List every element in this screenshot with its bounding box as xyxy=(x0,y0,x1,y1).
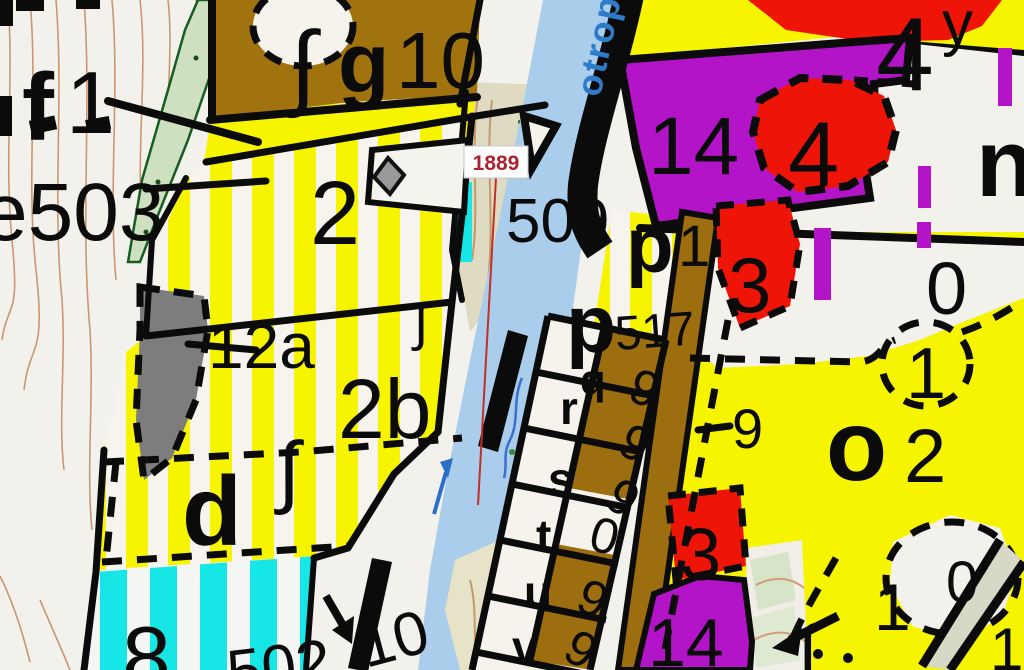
label-14-bottom: 14 xyxy=(648,605,724,670)
map-canvas[interactable]: 1889 xyxy=(0,0,1024,670)
label-d: d xyxy=(182,456,242,566)
survey-box xyxy=(368,140,468,212)
label-3-right: 3 xyxy=(728,241,771,329)
label-4-corner: 4 xyxy=(876,0,934,113)
green-dot xyxy=(509,449,515,455)
spring-symbol-icon: ∫ xyxy=(411,294,431,352)
label-2: 2 xyxy=(310,164,360,264)
label-o-num: 2 xyxy=(904,414,946,499)
label-3-bottom: 3 xyxy=(680,513,721,596)
label-f-num: 1 xyxy=(66,53,115,152)
label-517: 517 xyxy=(613,303,697,361)
spring-symbol-icon: ∫ xyxy=(273,426,304,515)
label-4-dashed: 4 xyxy=(788,104,839,206)
elevation-text: 1889 xyxy=(473,152,520,175)
ladder-letter-q: q xyxy=(580,356,606,403)
label-12a: 12a xyxy=(208,310,315,382)
label-14-top: 14 xyxy=(648,101,739,192)
ladder-letter-t: t xyxy=(536,510,551,562)
label-509: 509 xyxy=(506,187,609,256)
spring-symbol-icon: ∫ xyxy=(285,13,321,119)
label-n: n xyxy=(976,110,1024,217)
label-p1-p: p xyxy=(626,201,674,289)
label-1-yellow: 1 xyxy=(874,570,911,644)
label-1-corner: 1 xyxy=(990,616,1023,670)
label-8: 8 xyxy=(122,608,171,670)
label-g: g xyxy=(338,16,389,110)
label-e503: e503 xyxy=(0,167,164,258)
label-g-num: 10 xyxy=(396,16,485,105)
elevation-label: 1889 xyxy=(464,146,528,178)
label-0-right: 0 xyxy=(926,247,967,330)
ladder-letter-v: v xyxy=(512,621,538,670)
label-f: f xyxy=(22,54,55,161)
map-svg: 1889 xyxy=(0,0,1024,670)
label-y: y xyxy=(942,0,973,58)
ladder-letter-r: r xyxy=(560,382,578,434)
label-1-blob: 1 xyxy=(906,334,946,414)
label-9-leader: 9 xyxy=(732,397,763,460)
label-o: o xyxy=(826,390,887,502)
ladder-letter-s: s xyxy=(548,453,574,505)
label-p1-num: 1 xyxy=(678,214,710,279)
ladder-letter-u: u xyxy=(524,566,552,618)
label-2b: 2b xyxy=(338,362,431,456)
label-0-blob: 0 xyxy=(946,550,978,615)
